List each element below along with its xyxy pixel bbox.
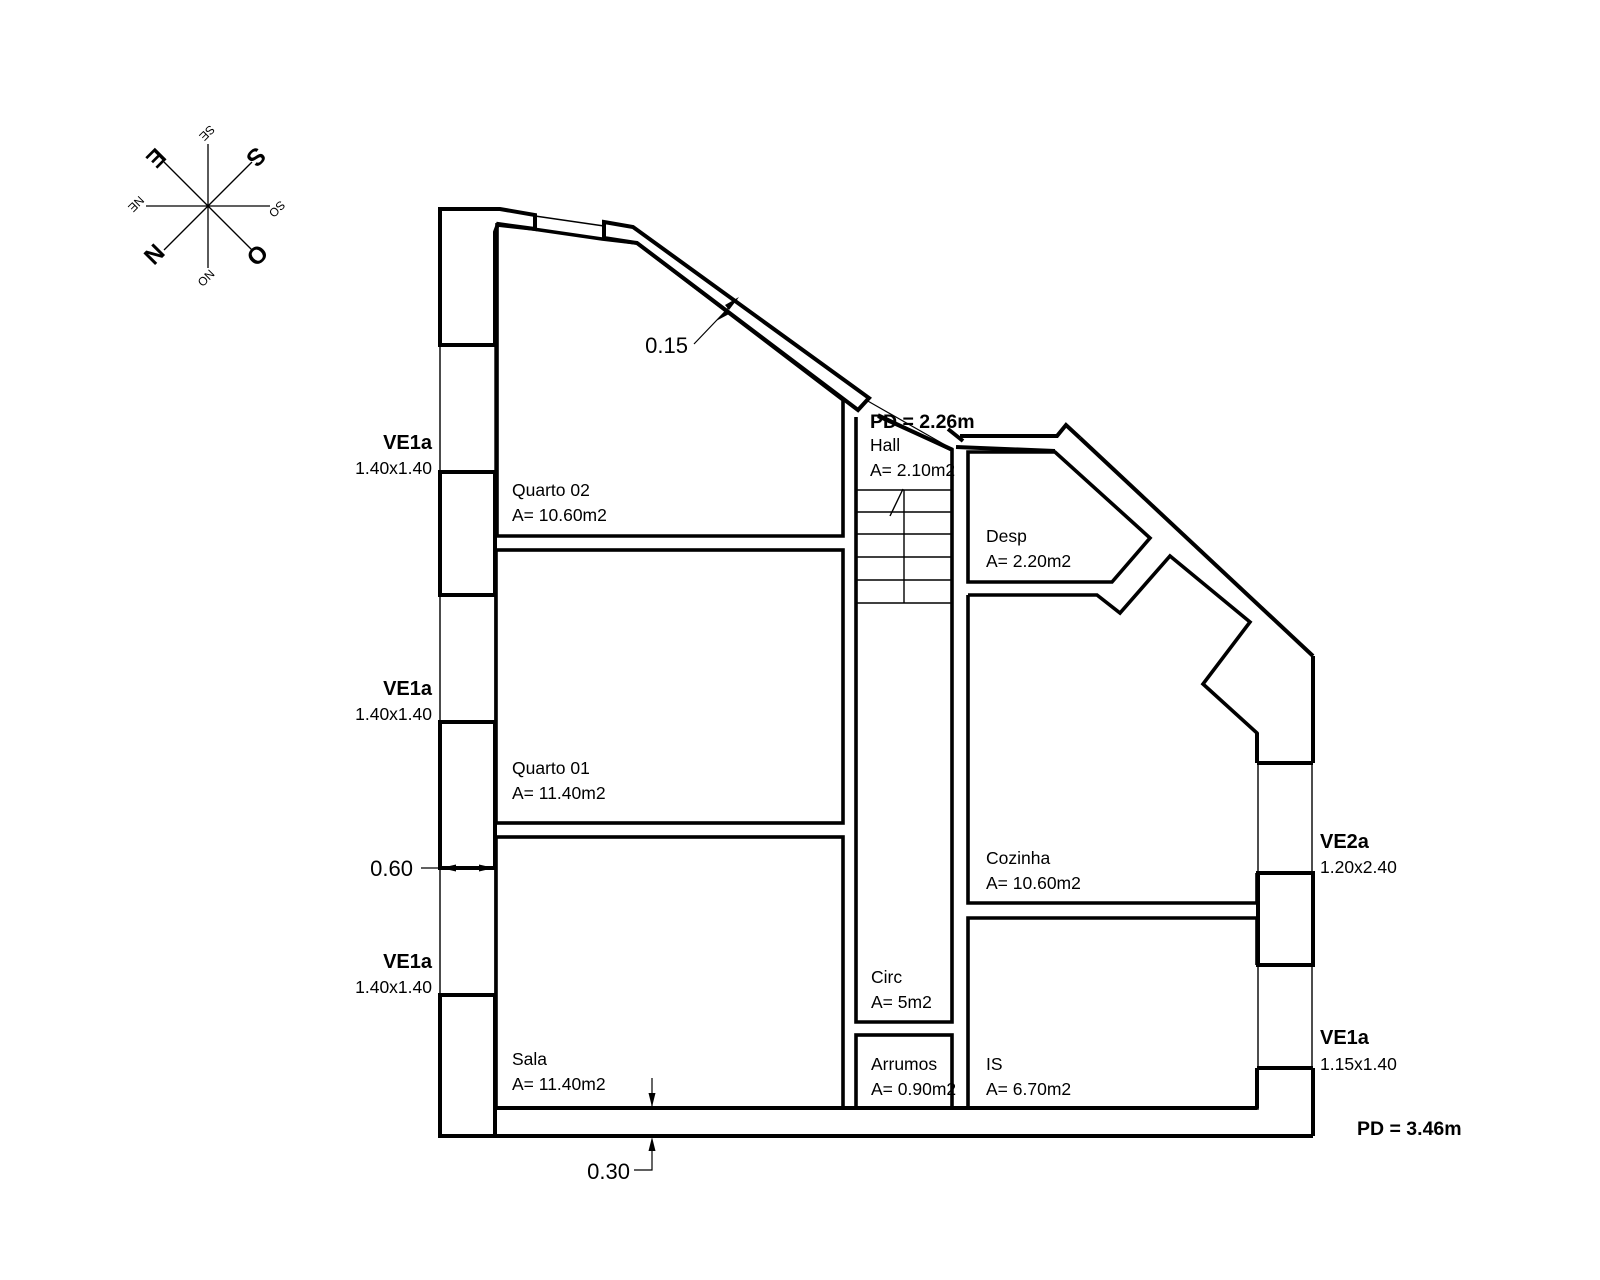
- compass-label-se: SE: [196, 122, 217, 143]
- window-tag-ve1a-1: VE1a: [383, 432, 433, 454]
- room-area-arrumos: A= 0.90m2: [871, 1079, 956, 1099]
- room-label-arrumos: Arrumos: [871, 1054, 937, 1074]
- window-size-ve1a-2: 1.40x1.40: [355, 704, 432, 724]
- wall-pier-right: [1258, 873, 1313, 965]
- wall-pier-left-3: [440, 722, 495, 868]
- compass-label-no: NO: [195, 267, 218, 290]
- room-outline-sala: [496, 837, 843, 1108]
- dimension-arrow: [649, 1137, 656, 1151]
- room-area-circ: A= 5m2: [871, 992, 932, 1012]
- window-tag-ve1a-2: VE1a: [383, 678, 433, 700]
- dimension-text-wall-top: 0.15: [645, 333, 688, 358]
- ceiling-height-ground: PD = 3.46m: [1357, 1118, 1462, 1140]
- floor-plan-page: E S N O SE NE SO NO: [0, 0, 1600, 1280]
- window-size-ve1a-3: 1.40x1.40: [355, 977, 432, 997]
- staircase: [856, 489, 952, 603]
- window-tag-ve2a: VE2a: [1320, 831, 1370, 853]
- room-area-is: A= 6.70m2: [986, 1079, 1071, 1099]
- room-area-hall: A= 2.10m2: [870, 460, 955, 480]
- window-size-ve1a-1: 1.40x1.40: [355, 458, 432, 478]
- room-label-is: IS: [986, 1054, 1003, 1074]
- room-area-quarto01: A= 11.40m2: [512, 783, 606, 803]
- room-area-desp: A= 2.20m2: [986, 551, 1071, 571]
- wall-pier-left-2: [440, 472, 495, 595]
- room-label-cozinha: Cozinha: [986, 848, 1050, 868]
- room-label-sala: Sala: [512, 1049, 547, 1069]
- room-area-quarto02: A= 10.60m2: [512, 505, 607, 525]
- wall-top-right-outer: [960, 425, 1080, 438]
- window-tag-ve1a-right: VE1a: [1320, 1027, 1370, 1049]
- compass-label-s: S: [240, 141, 270, 171]
- dimension-text-wall-left: 0.60: [370, 856, 413, 881]
- wall-pier-left-4: [440, 995, 495, 1136]
- window-tag-ve1a-3: VE1a: [383, 951, 433, 973]
- room-label-circ: Circ: [871, 967, 902, 987]
- window-size-ve2a: 1.20x2.40: [1320, 857, 1397, 877]
- dimension-text-wall-bottom: 0.30: [587, 1159, 630, 1184]
- room-label-hall: Hall: [870, 435, 900, 455]
- compass-label-e: E: [140, 142, 170, 172]
- window-opening-top: [535, 216, 604, 226]
- room-label-quarto02: Quarto 02: [512, 480, 590, 500]
- window-openings: [440, 216, 1312, 1068]
- dimension-arrow: [649, 1093, 656, 1107]
- ceiling-height-upper: PD = 2.26m: [870, 411, 975, 433]
- room-area-sala: A= 11.40m2: [512, 1074, 606, 1094]
- floor-plan-drawing: E S N O SE NE SO NO: [0, 0, 1600, 1280]
- room-label-quarto01: Quarto 01: [512, 758, 590, 778]
- wall-ne-diagonal-outer: [1080, 438, 1313, 656]
- window-size-ve1a-right: 1.15x1.40: [1320, 1054, 1397, 1074]
- compass-label-ne: NE: [125, 193, 147, 215]
- dimension-leader: [634, 1141, 652, 1170]
- room-label-desp: Desp: [986, 526, 1027, 546]
- room-area-cozinha: A= 10.60m2: [986, 873, 1081, 893]
- compass-label-n: N: [138, 238, 169, 269]
- compass-label-so: SO: [266, 198, 288, 220]
